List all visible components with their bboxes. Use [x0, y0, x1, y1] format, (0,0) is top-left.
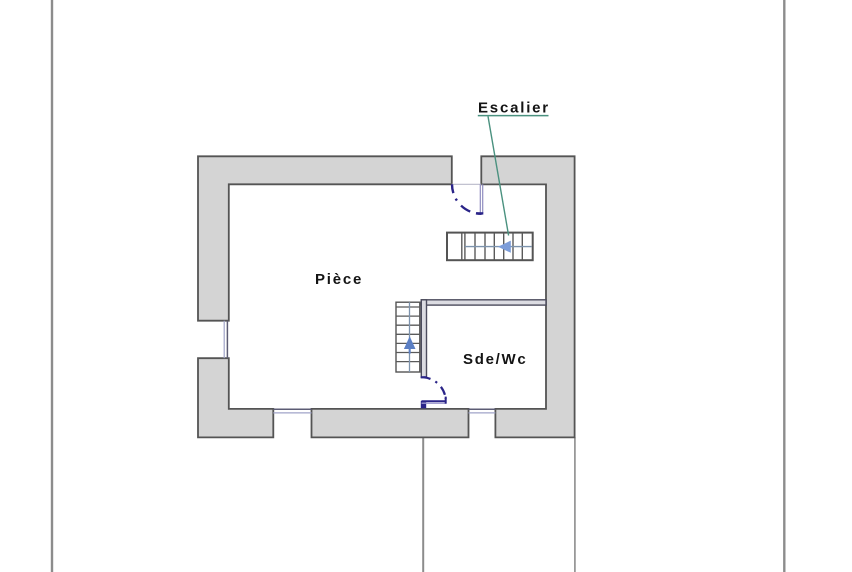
svg-text:Pièce: Pièce — [315, 271, 363, 288]
svg-text:Sde/Wc: Sde/Wc — [463, 351, 527, 368]
svg-text:Escalier: Escalier — [478, 99, 550, 116]
